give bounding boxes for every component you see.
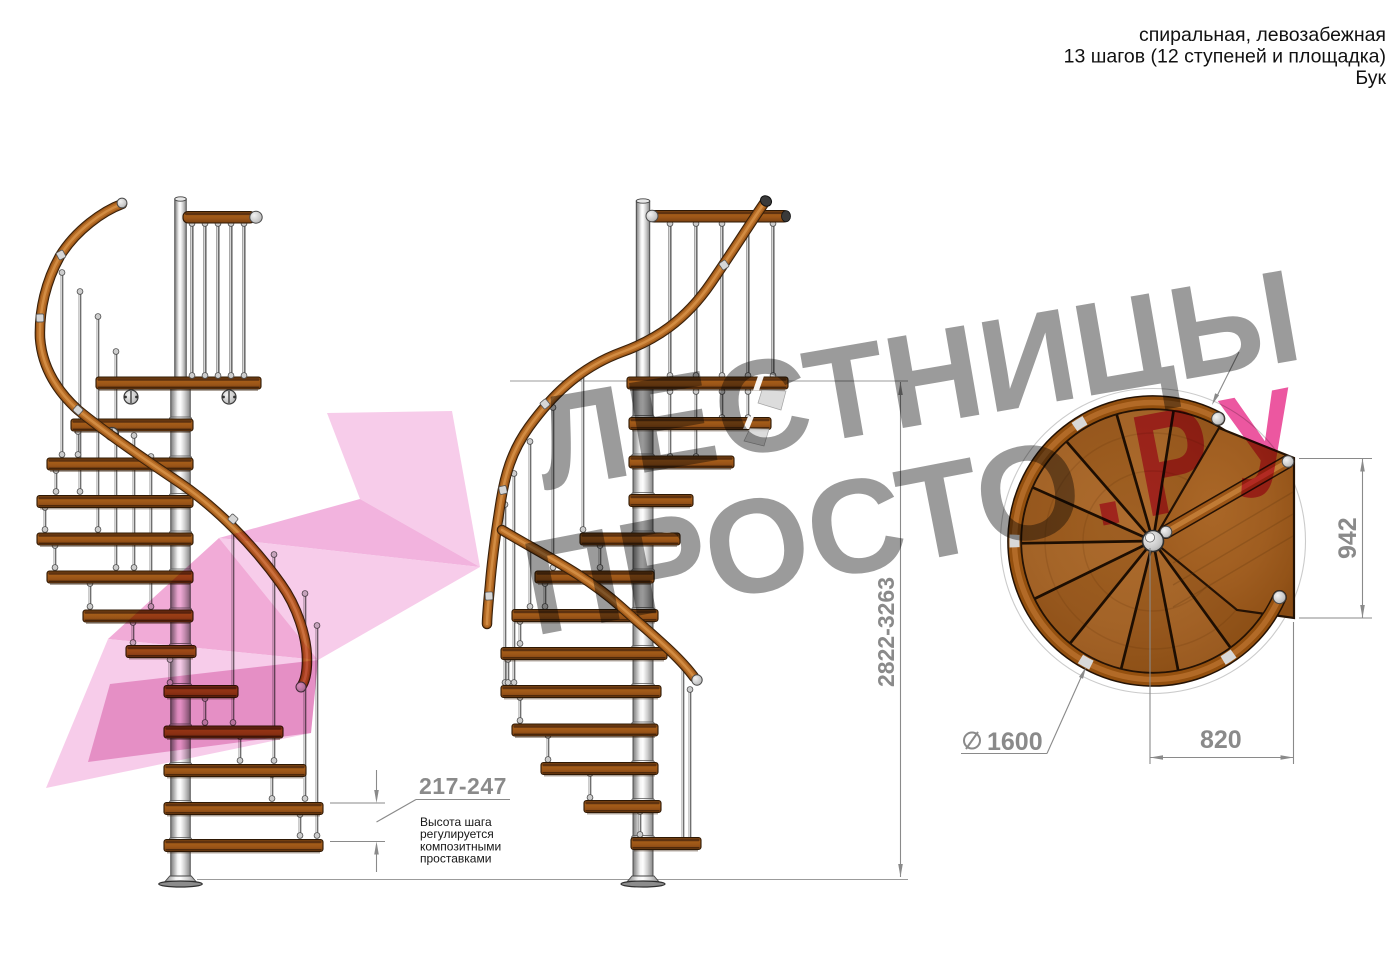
- svg-text:Бук: Бук: [1355, 67, 1386, 89]
- svg-text:942: 942: [1334, 517, 1362, 559]
- svg-text:Высота шагарегулируетсякомпози: Высота шагарегулируетсякомпозитнымипрост…: [420, 815, 501, 866]
- svg-text:820: 820: [1200, 726, 1242, 754]
- svg-text:217-247: 217-247: [419, 773, 507, 799]
- svg-text:спиральная, левозабежная: спиральная, левозабежная: [1139, 24, 1386, 46]
- svg-text:13 шагов (12 ступеней и площад: 13 шагов (12 ступеней и площадка): [1064, 46, 1386, 68]
- svg-text:1600: 1600: [987, 728, 1043, 756]
